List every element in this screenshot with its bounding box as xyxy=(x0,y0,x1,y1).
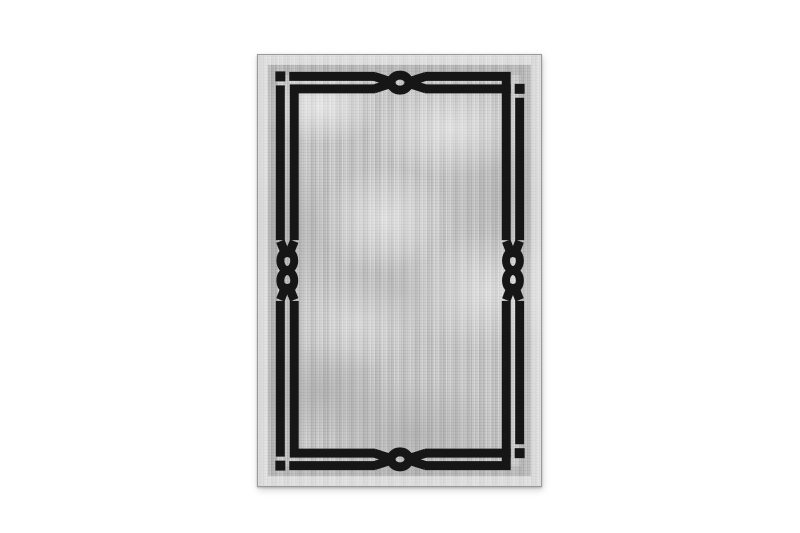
figure-eight-motif-right xyxy=(506,241,520,300)
link-eye-lower xyxy=(506,271,520,290)
corner-square-top-right xyxy=(515,84,525,94)
corner-angle-top-right xyxy=(425,76,506,240)
figure-eight-motif-left xyxy=(280,241,294,300)
corner-square-top-left xyxy=(275,71,285,81)
corner-angle-bottom-right xyxy=(425,301,506,466)
frame-corner-angles xyxy=(294,76,506,465)
link-eye-lower xyxy=(280,271,294,290)
link-eye xyxy=(391,75,409,90)
rug-border-frame xyxy=(258,55,541,486)
chain-link-motif-top xyxy=(374,75,426,90)
chain-link-motif-bottom xyxy=(374,452,426,467)
corner-square-bottom-right xyxy=(515,448,525,458)
link-eye xyxy=(391,452,409,467)
corner-square-bottom-left xyxy=(275,461,285,471)
product-image-canvas xyxy=(0,0,800,533)
frame-line-segments xyxy=(280,76,519,465)
rug-photo xyxy=(257,54,542,487)
corner-angle-bottom-left xyxy=(294,301,375,453)
corner-angle-top-left xyxy=(294,89,375,240)
frame-corner-squares xyxy=(275,71,524,470)
